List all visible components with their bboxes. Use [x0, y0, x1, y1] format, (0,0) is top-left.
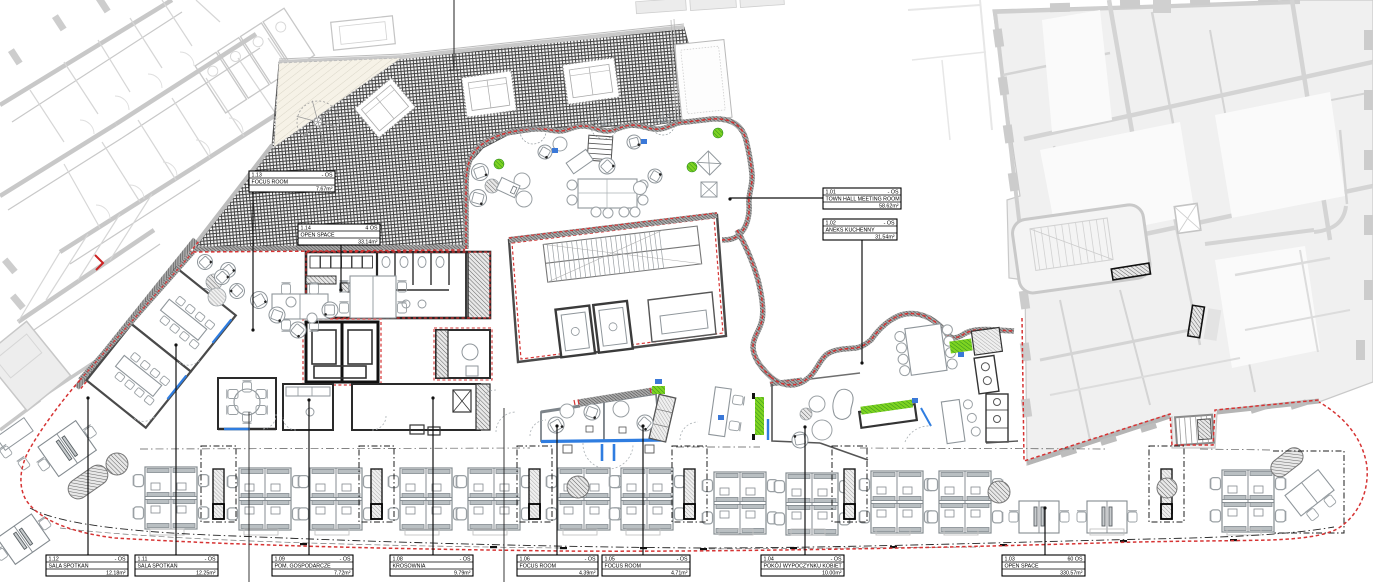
svg-text:31.54m²: 31.54m² — [875, 235, 895, 241]
svg-text:60 OS: 60 OS — [1067, 557, 1082, 563]
svg-text:- OS: - OS — [115, 557, 126, 563]
svg-text:ANEKS KUCHENNY: ANEKS KUCHENNY — [826, 228, 876, 234]
svg-text:330.57m²: 330.57m² — [1060, 571, 1083, 577]
svg-text:4.39m²: 4.39m² — [579, 571, 596, 577]
svg-text:- OS: - OS — [585, 557, 596, 563]
svg-text:POM. GOSPODARCZE: POM. GOSPODARCZE — [275, 564, 332, 570]
svg-text:1.05: 1.05 — [605, 557, 615, 563]
svg-text:1.06: 1.06 — [520, 557, 530, 563]
svg-text:12.18m²: 12.18m² — [106, 571, 126, 577]
svg-text:- OS: - OS — [831, 557, 842, 563]
svg-text:- OS: - OS — [884, 221, 895, 227]
svg-text:OPEN SPACE: OPEN SPACE — [1005, 564, 1040, 570]
svg-text:- OS: - OS — [677, 557, 688, 563]
svg-text:1.11: 1.11 — [138, 557, 148, 563]
svg-text:12.25m²: 12.25m² — [196, 571, 216, 577]
svg-text:1.12: 1.12 — [49, 557, 59, 563]
svg-text:1.08: 1.08 — [393, 557, 403, 563]
svg-text:7.72m²: 7.72m² — [334, 571, 351, 577]
svg-text:7.67m²: 7.67m² — [316, 187, 333, 193]
svg-text:TOWN HALL MEETING ROOM: TOWN HALL MEETING ROOM — [826, 197, 900, 203]
svg-text:1.03: 1.03 — [1005, 557, 1015, 563]
svg-text:OPEN SPACE: OPEN SPACE — [301, 233, 336, 239]
svg-text:1.04: 1.04 — [764, 557, 774, 563]
svg-text:- OS: - OS — [888, 190, 899, 196]
svg-text:POKÓJ WYPOCZYNKU KOBIET: POKÓJ WYPOCZYNKU KOBIET — [764, 563, 843, 570]
svg-text:1.09: 1.09 — [275, 557, 285, 563]
svg-text:4 OS: 4 OS — [365, 226, 378, 232]
svg-text:10.00m²: 10.00m² — [822, 571, 842, 577]
svg-text:1.02: 1.02 — [826, 221, 836, 227]
svg-text:KROSOWNIA: KROSOWNIA — [393, 564, 426, 570]
svg-text:58.62m²: 58.62m² — [879, 204, 899, 210]
svg-text:- OS: - OS — [340, 557, 351, 563]
svg-text:- OS: - OS — [205, 557, 216, 563]
svg-text:1.01: 1.01 — [826, 190, 836, 196]
svg-text:4.71m²: 4.71m² — [671, 571, 688, 577]
svg-text:SALA SPOTKAŃ: SALA SPOTKAŃ — [138, 563, 178, 570]
svg-text:1.14: 1.14 — [301, 226, 311, 232]
svg-text:- OS: - OS — [322, 173, 333, 179]
svg-text:SALA SPOTKAŃ: SALA SPOTKAŃ — [49, 563, 89, 570]
svg-text:9.79m²: 9.79m² — [454, 571, 471, 577]
svg-text:1.13: 1.13 — [252, 173, 262, 179]
svg-text:FOCUS ROOM: FOCUS ROOM — [252, 180, 289, 186]
svg-text:FOCUS ROOM: FOCUS ROOM — [605, 564, 642, 570]
svg-text:33.14m²: 33.14m² — [358, 240, 378, 246]
svg-text:FOCUS ROOM: FOCUS ROOM — [520, 564, 557, 570]
svg-text:- OS: - OS — [460, 557, 471, 563]
